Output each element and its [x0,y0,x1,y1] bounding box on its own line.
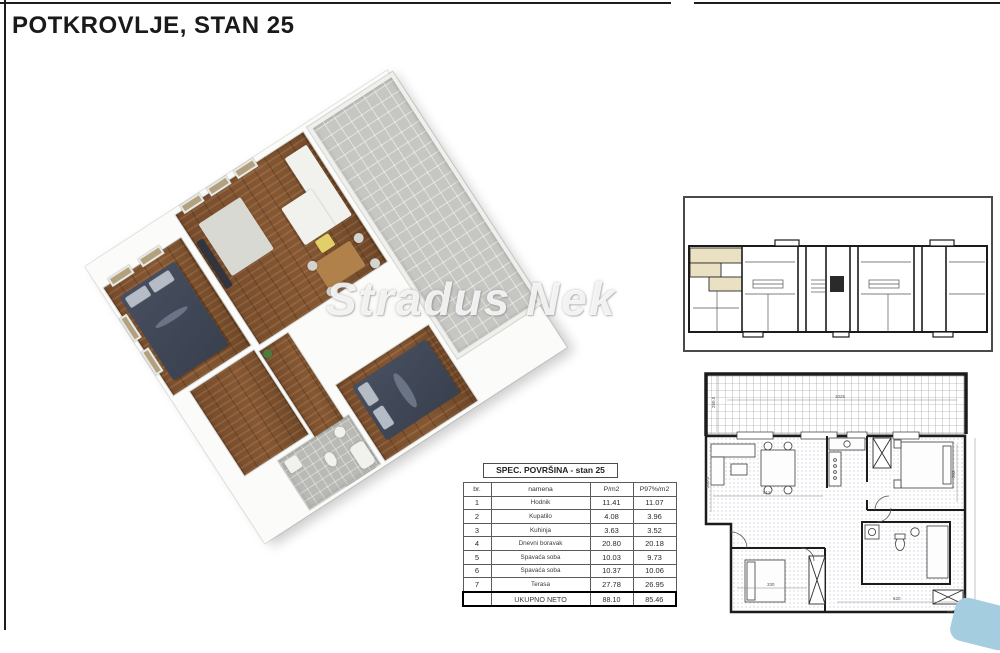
row-area: 10.03 [590,550,633,564]
detail-floor-plan: 260.5 1025 300.5 512 302 330 620 [697,362,997,628]
row-num: 7 [463,578,491,592]
dim-label: 260.5 [711,396,716,408]
table-total-row: UKUPNO NETO 88.10 85.46 [463,592,676,607]
spec-table-title: SPEC. POVRŠINA - stan 25 [483,463,618,478]
row-name: Hodnik [491,496,590,510]
table-row: 2 Kupatilo 4.08 3.96 [463,510,676,524]
row-name: Kupatilo [491,510,590,524]
row-area: 10.37 [590,564,633,578]
table-row: 7 Terasa 27.78 26.95 [463,578,676,592]
row-name: Dnevni boravak [491,537,590,551]
col-header-namena: namena [491,483,590,497]
total-area97: 85.46 [633,592,676,607]
row-name: Spavaća soba [491,550,590,564]
row-name: Spavaća soba [491,564,590,578]
row-area: 27.78 [590,578,633,592]
spec-table: br. namena P/m2 P97%/m2 1 Hodnik 11.41 1… [462,482,677,607]
dim-label: 302 [951,470,956,478]
row-area97: 9.73 [633,550,676,564]
row-num: 6 [463,564,491,578]
row-area97: 26.95 [633,578,676,592]
page-title: POTKROVLJE, STAN 25 [12,12,294,40]
table-row: 6 Spavaća soba 10.37 10.06 [463,564,676,578]
frame-top-line [0,2,1000,4]
table-row: 4 Dnevni boravak 20.80 20.18 [463,537,676,551]
table-row: 3 Kuhinja 3.63 3.52 [463,523,676,537]
dim-label: 1025 [835,394,846,399]
row-area: 3.63 [590,523,633,537]
row-area97: 3.52 [633,523,676,537]
row-area: 11.41 [590,496,633,510]
row-num: 5 [463,550,491,564]
terrace-2d [706,374,966,434]
col-header-p97m2: P97%/m2 [633,483,676,497]
dim-label: 300.5 [705,476,710,488]
row-area97: 11.07 [633,496,676,510]
frame-top-gap [671,0,694,6]
dim-label: 512 [763,490,771,495]
col-header-pm2: P/m2 [590,483,633,497]
row-num: 1 [463,496,491,510]
col-header-br: br. [463,483,491,497]
row-area97: 3.96 [633,510,676,524]
row-area97: 20.18 [633,537,676,551]
dim-label: 330 [767,582,775,587]
total-label: UKUPNO NETO [491,592,590,607]
row-name: Terasa [491,578,590,592]
building-floor-overview [683,196,993,352]
row-area: 4.08 [590,510,633,524]
row-name: Kuhinja [491,523,590,537]
row-num: 3 [463,523,491,537]
spec-table-header-row: br. namena P/m2 P97%/m2 [463,483,676,497]
table-row: 1 Hodnik 11.41 11.07 [463,496,676,510]
total-empty [463,592,491,607]
row-area97: 10.06 [633,564,676,578]
row-num: 2 [463,510,491,524]
dim-label: 620 [893,596,901,601]
frame-left-line [4,0,6,630]
corner-logo-fragment [948,595,1000,653]
total-area: 88.10 [590,592,633,607]
row-num: 4 [463,537,491,551]
row-area: 20.80 [590,537,633,551]
table-row: 5 Spavaća soba 10.03 9.73 [463,550,676,564]
